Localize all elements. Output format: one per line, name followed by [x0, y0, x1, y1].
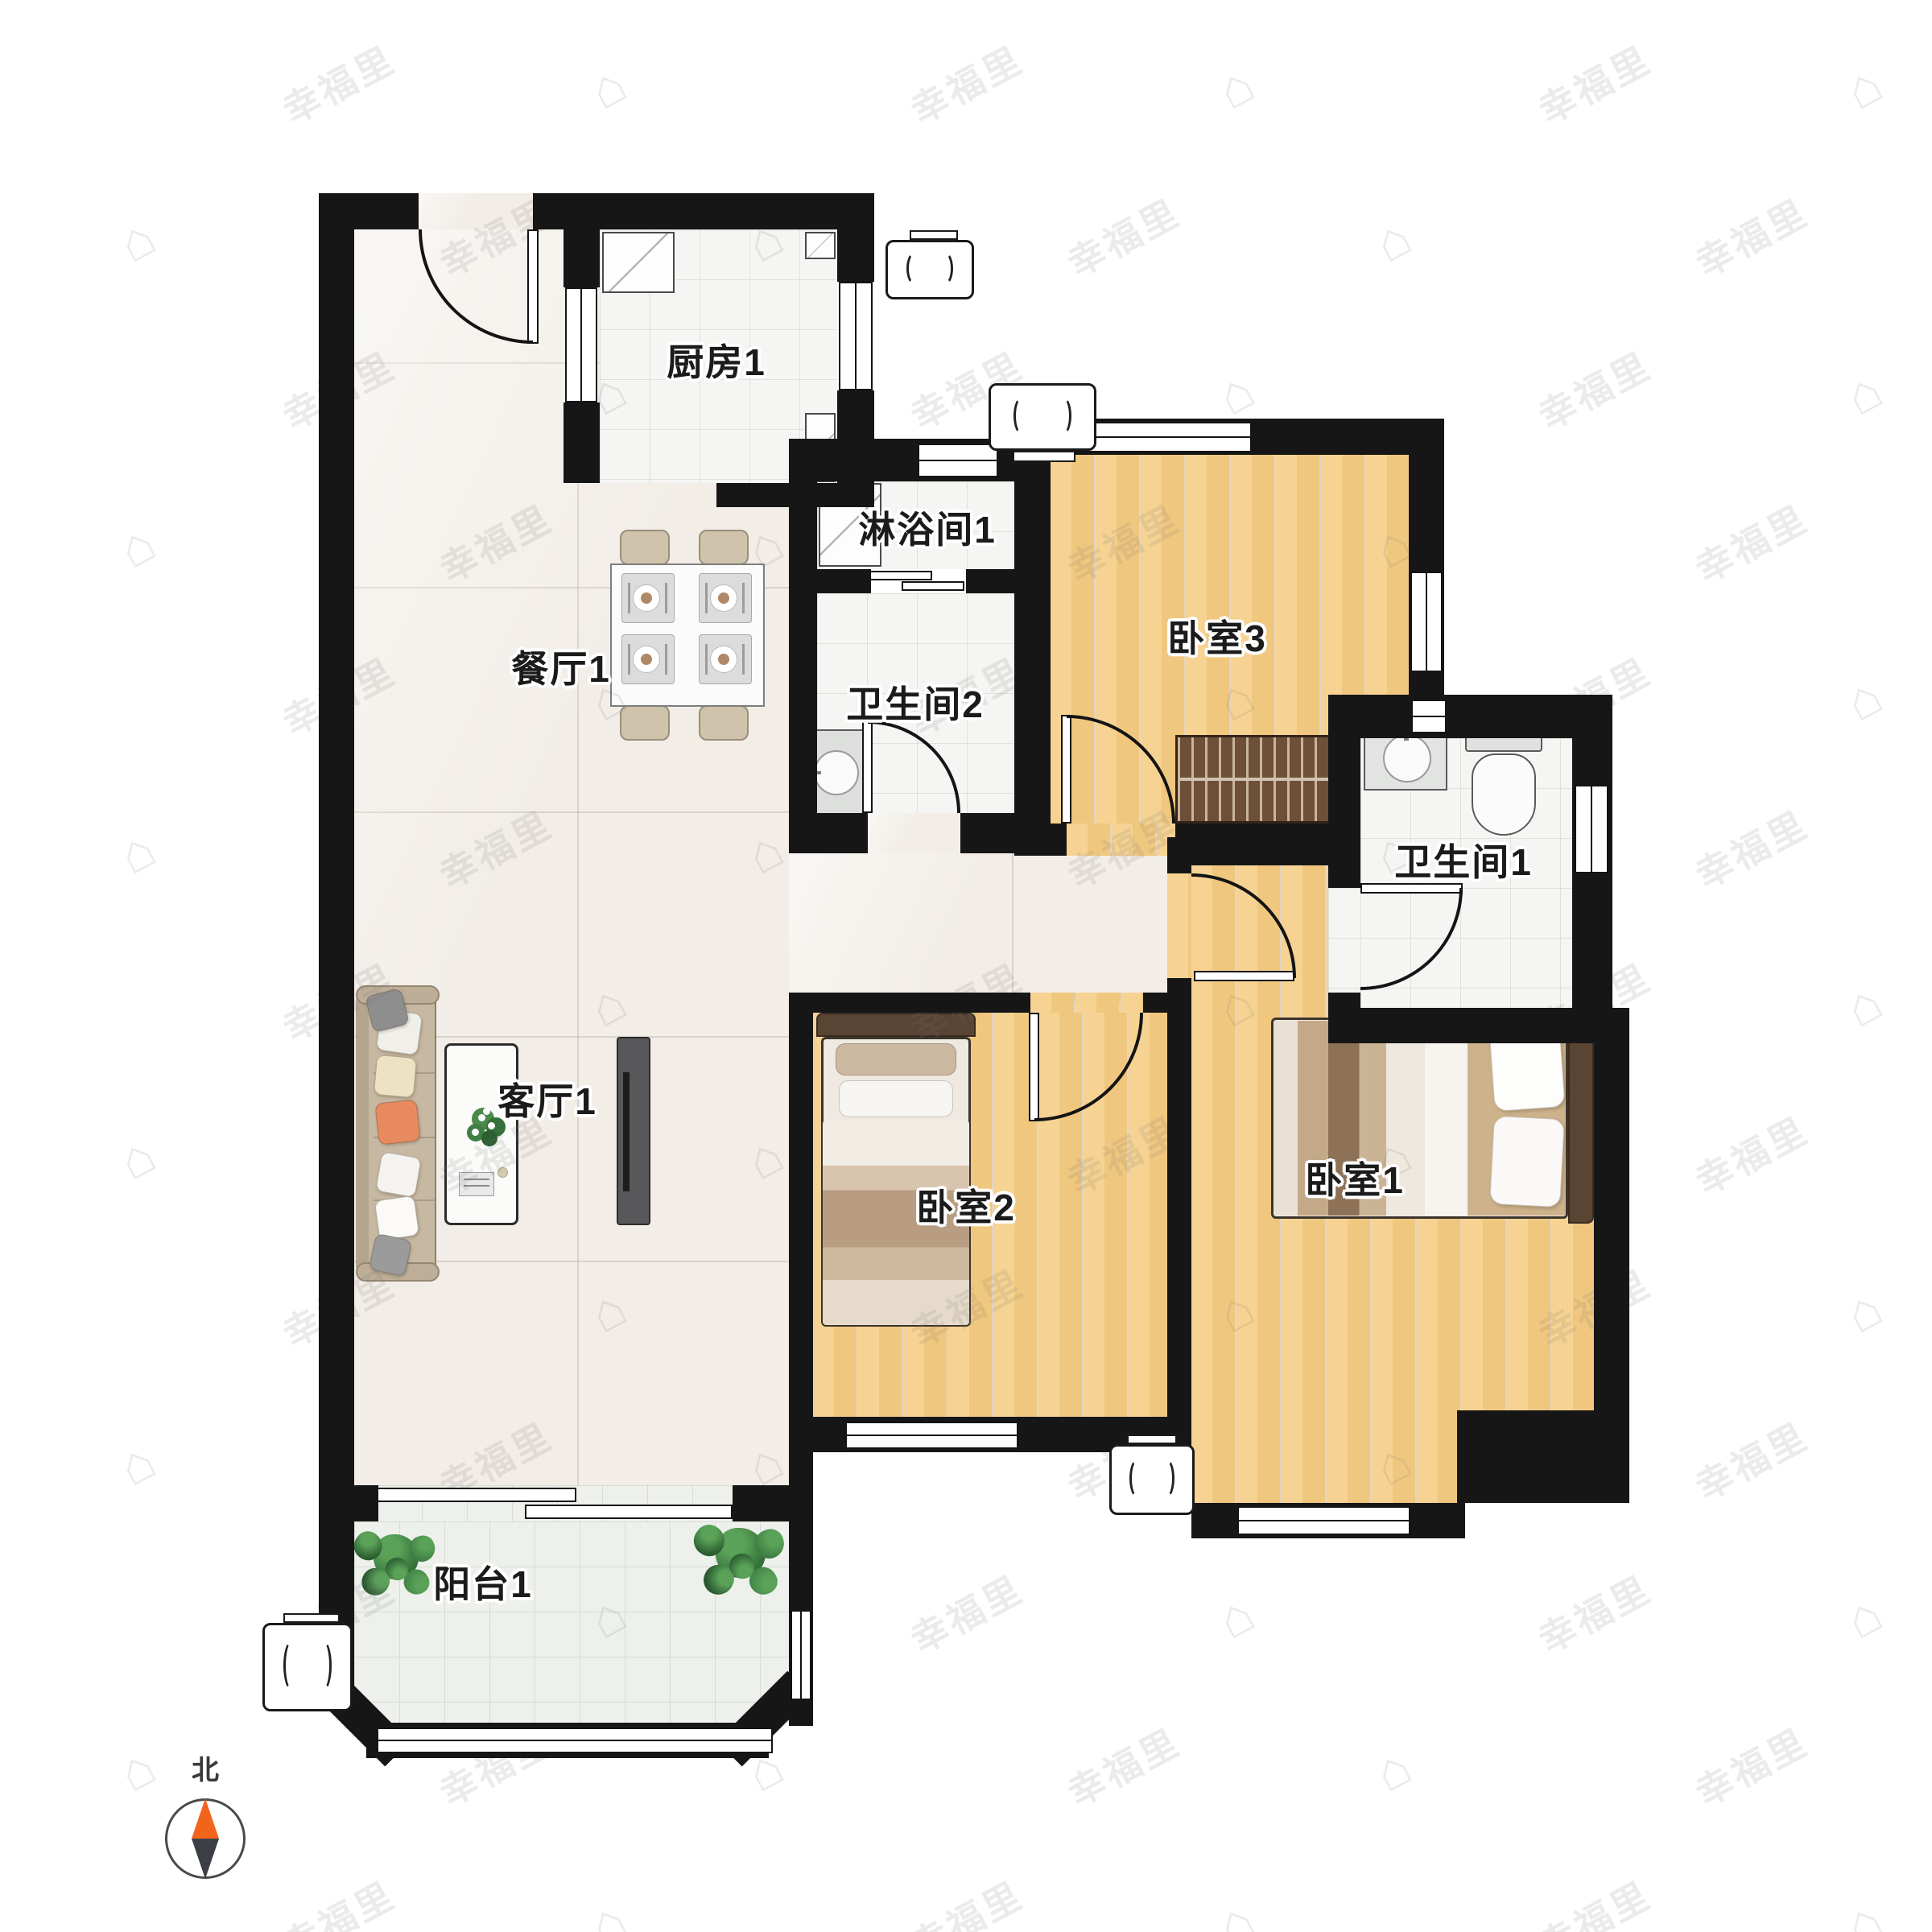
wall: [966, 569, 1014, 593]
plate-icon: [641, 654, 652, 665]
cutlery-icon: [628, 644, 630, 675]
watermark-house-icon: ⌂: [108, 511, 165, 580]
wall: [533, 193, 874, 229]
ac-bracket-icon: [937, 252, 953, 285]
watermark-text: 幸福里: [1057, 184, 1188, 288]
flower-icon: [472, 1129, 479, 1136]
cutlery-icon: [665, 644, 667, 675]
bed2-pillow: [839, 1080, 953, 1117]
room-label: 淋浴间1: [858, 501, 997, 554]
window: [1237, 1506, 1410, 1535]
watermark-house-icon: ⌂: [1364, 205, 1421, 275]
window: [565, 287, 597, 402]
watermark-house-icon: ⌂: [0, 52, 8, 122]
wall: [1014, 824, 1067, 856]
watermark-text: 幸福里: [1685, 796, 1816, 900]
cutlery-icon: [705, 583, 708, 613]
compass-needle-north: [192, 1798, 219, 1839]
sofa-pillow: [375, 1151, 422, 1198]
watermark-house-icon: ⌂: [1835, 358, 1892, 427]
dining-chair: [699, 705, 749, 741]
ac-bracket-icon: [316, 1641, 332, 1690]
wall: [1457, 1410, 1629, 1503]
watermark-house-icon: ⌂: [108, 817, 165, 886]
wall: [1143, 993, 1167, 1013]
bed2-headboard: [816, 1013, 976, 1037]
sofa-pillow: [374, 1099, 420, 1145]
watermark-house-icon: ⌂: [0, 970, 8, 1039]
wall: [1167, 978, 1191, 1417]
wall: [817, 569, 871, 593]
watermark-text: 幸福里: [900, 1561, 1031, 1665]
watermark-house-icon: ⌂: [579, 1888, 636, 1932]
window: [839, 282, 873, 390]
dining-chair: [620, 705, 670, 741]
flower-icon: [478, 1114, 485, 1121]
watermark-house-icon: ⌂: [108, 1429, 165, 1498]
floor-tile-9: [1328, 888, 1360, 993]
cutlery-icon: [705, 644, 708, 675]
sofa-pillow: [374, 1055, 417, 1098]
plate-icon: [641, 592, 652, 604]
watermark-text: 幸福里: [272, 31, 403, 135]
dining-chair: [699, 530, 749, 565]
watermark-house-icon: ⌂: [1835, 970, 1892, 1039]
toilet-bowl: [1472, 753, 1536, 836]
watermark-text: 幸福里: [1528, 1561, 1659, 1665]
watermark-house-icon: ⌂: [108, 205, 165, 275]
watermark-text: 幸福里: [1528, 31, 1659, 135]
watermark-house-icon: ⌂: [1207, 358, 1264, 427]
watermark-text: 幸福里: [1057, 1714, 1188, 1818]
sofa-pillow: [369, 1233, 413, 1278]
wall: [1167, 856, 1191, 873]
wall: [960, 813, 1014, 853]
magazine: [464, 1179, 489, 1180]
cutlery-icon: [742, 583, 745, 613]
north-label: 北: [192, 1748, 219, 1788]
wall: [813, 993, 1030, 1013]
cabinet: [602, 232, 675, 293]
room-label: 卧室3: [1167, 609, 1267, 663]
cabinet: [805, 232, 836, 259]
watermark-text: 幸福里: [272, 1867, 403, 1932]
room-label: 餐厅1: [511, 640, 611, 693]
watermark-house-icon: ⌂: [1207, 52, 1264, 122]
floor-marble-3: [868, 813, 960, 853]
cutlery-icon: [628, 583, 630, 613]
ac-bracket-icon: [906, 252, 923, 285]
floor-wood-12: [1167, 873, 1191, 978]
watermark-house-icon: ⌂: [1835, 1888, 1892, 1932]
wall: [319, 229, 354, 1485]
window: [845, 1422, 1018, 1449]
sliding-door-panel: [525, 1505, 733, 1519]
wall: [1167, 837, 1332, 865]
window: [1575, 785, 1608, 873]
floor-plan-canvas: 幸福里⌂幸福里⌂幸福里⌂幸福里⌂⌂幸福里⌂幸福里⌂幸福里⌂幸福里幸福里⌂幸福里⌂…: [0, 0, 1932, 1932]
wall: [1328, 738, 1360, 888]
room-label: 客厅1: [497, 1072, 597, 1125]
wall: [1328, 993, 1360, 1009]
watermark-house-icon: ⌂: [1835, 52, 1892, 122]
window: [1410, 572, 1443, 672]
ac-bracket-icon: [1158, 1459, 1174, 1498]
magazine: [464, 1185, 489, 1187]
room-label: 卫生间2: [846, 675, 985, 729]
magazine: [459, 1172, 494, 1196]
floor-wood-14: [1067, 824, 1175, 856]
sliding-door-panel: [377, 1488, 576, 1502]
window: [1083, 422, 1252, 452]
flower-icon: [483, 1108, 490, 1115]
flower-icon: [481, 1130, 497, 1146]
ac-mount-bar: [283, 1613, 340, 1623]
wall: [837, 193, 874, 282]
ac-mount-bar: [1127, 1435, 1177, 1444]
watermark-house-icon: ⌂: [108, 1735, 165, 1804]
sink-basin: [1383, 734, 1431, 782]
wall: [563, 402, 600, 483]
sofa-back: [356, 995, 369, 1272]
watermark-text: 幸福里: [900, 1867, 1031, 1932]
watermark-house-icon: ⌂: [1364, 1735, 1421, 1804]
floor-marble-2: [789, 853, 1167, 1002]
watermark-house-icon: ⌂: [1207, 1888, 1264, 1932]
bed1-headboard: [1568, 1013, 1594, 1224]
wall: [1594, 1008, 1629, 1420]
watermark-text: 幸福里: [1528, 1867, 1659, 1932]
floor-wood-15: [1030, 993, 1143, 1013]
room-label: 卫生间1: [1394, 833, 1533, 886]
tv-console: [617, 1037, 650, 1225]
wardrobe-rail: [1180, 778, 1328, 781]
tv-screen: [623, 1072, 630, 1191]
watermark-house-icon: ⌂: [0, 1276, 8, 1345]
wall: [354, 1485, 378, 1521]
watermark-house-icon: ⌂: [0, 1582, 8, 1651]
room-label: 卧室1: [1305, 1151, 1405, 1204]
watermark-text: 幸福里: [900, 31, 1031, 135]
ac-unit-icon: [1109, 1444, 1195, 1515]
window: [918, 444, 998, 477]
bed1-pillow: [1489, 1116, 1565, 1207]
window: [377, 1728, 773, 1753]
watermark-house-icon: ⌂: [1835, 1582, 1892, 1651]
ac-bracket-icon: [1013, 397, 1030, 435]
sliding-door-panel: [869, 571, 932, 580]
watermark-text: 幸福里: [1685, 1102, 1816, 1206]
watermark-house-icon: ⌂: [0, 358, 8, 427]
room-label: 阳台1: [433, 1555, 533, 1608]
watermark-text: 幸福里: [1685, 1714, 1816, 1818]
watermark-house-icon: ⌂: [1835, 1276, 1892, 1345]
wall: [789, 813, 868, 853]
plate-icon: [718, 592, 729, 604]
ac-bracket-icon: [283, 1641, 299, 1690]
wall: [789, 439, 817, 853]
plate-icon: [718, 654, 729, 665]
bed2-pillow: [836, 1043, 956, 1075]
watermark-text: 幸福里: [1685, 490, 1816, 594]
watermark-text: 幸福里: [1528, 337, 1659, 441]
ac-bracket-icon: [1129, 1459, 1146, 1498]
wall: [733, 1485, 789, 1521]
ac-mount-bar: [1013, 451, 1075, 462]
floor-marble-1: [419, 193, 533, 229]
ac-mount-bar: [910, 230, 958, 240]
wall: [1328, 695, 1610, 738]
watermark-text: 幸福里: [1685, 1408, 1816, 1512]
coin: [497, 1167, 508, 1178]
watermark-house-icon: ⌂: [1207, 1582, 1264, 1651]
compass-needle-south: [192, 1839, 219, 1879]
dining-chair: [620, 530, 670, 565]
ac-unit-icon: [989, 383, 1096, 451]
room-label: 卧室2: [916, 1179, 1016, 1232]
cutlery-icon: [665, 583, 667, 613]
wall: [319, 193, 419, 229]
watermark-house-icon: ⌂: [0, 1888, 8, 1932]
wall: [1014, 419, 1051, 856]
wall: [1328, 1008, 1612, 1043]
ac-unit-icon: [885, 240, 974, 299]
sliding-door-panel: [902, 581, 964, 591]
watermark-house-icon: ⌂: [108, 1123, 165, 1192]
watermark-house-icon: ⌂: [1835, 664, 1892, 733]
window: [791, 1610, 811, 1700]
watermark-house-icon: ⌂: [0, 664, 8, 733]
wall: [563, 229, 600, 287]
room-label: 厨房1: [667, 333, 766, 386]
watermark-house-icon: ⌂: [579, 52, 636, 122]
ac-unit-icon: [262, 1623, 353, 1711]
window: [1411, 700, 1447, 733]
watermark-text: 幸福里: [1685, 184, 1816, 288]
cutlery-icon: [742, 644, 745, 675]
ac-bracket-icon: [1055, 397, 1071, 435]
flower-icon: [488, 1122, 495, 1129]
